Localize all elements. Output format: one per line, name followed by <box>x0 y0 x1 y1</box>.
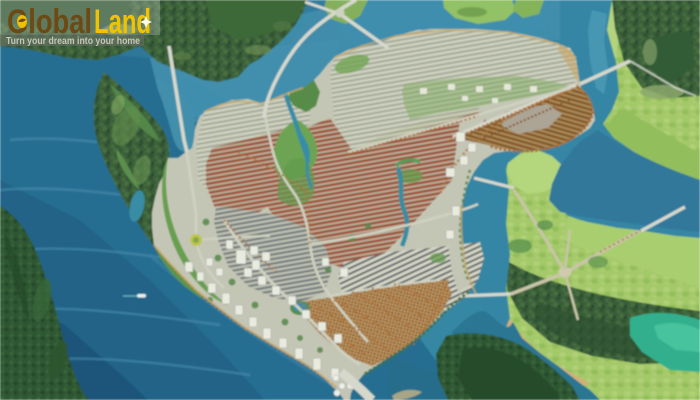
svg-text:Turn your dream into your home: Turn your dream into your home <box>6 36 140 47</box>
